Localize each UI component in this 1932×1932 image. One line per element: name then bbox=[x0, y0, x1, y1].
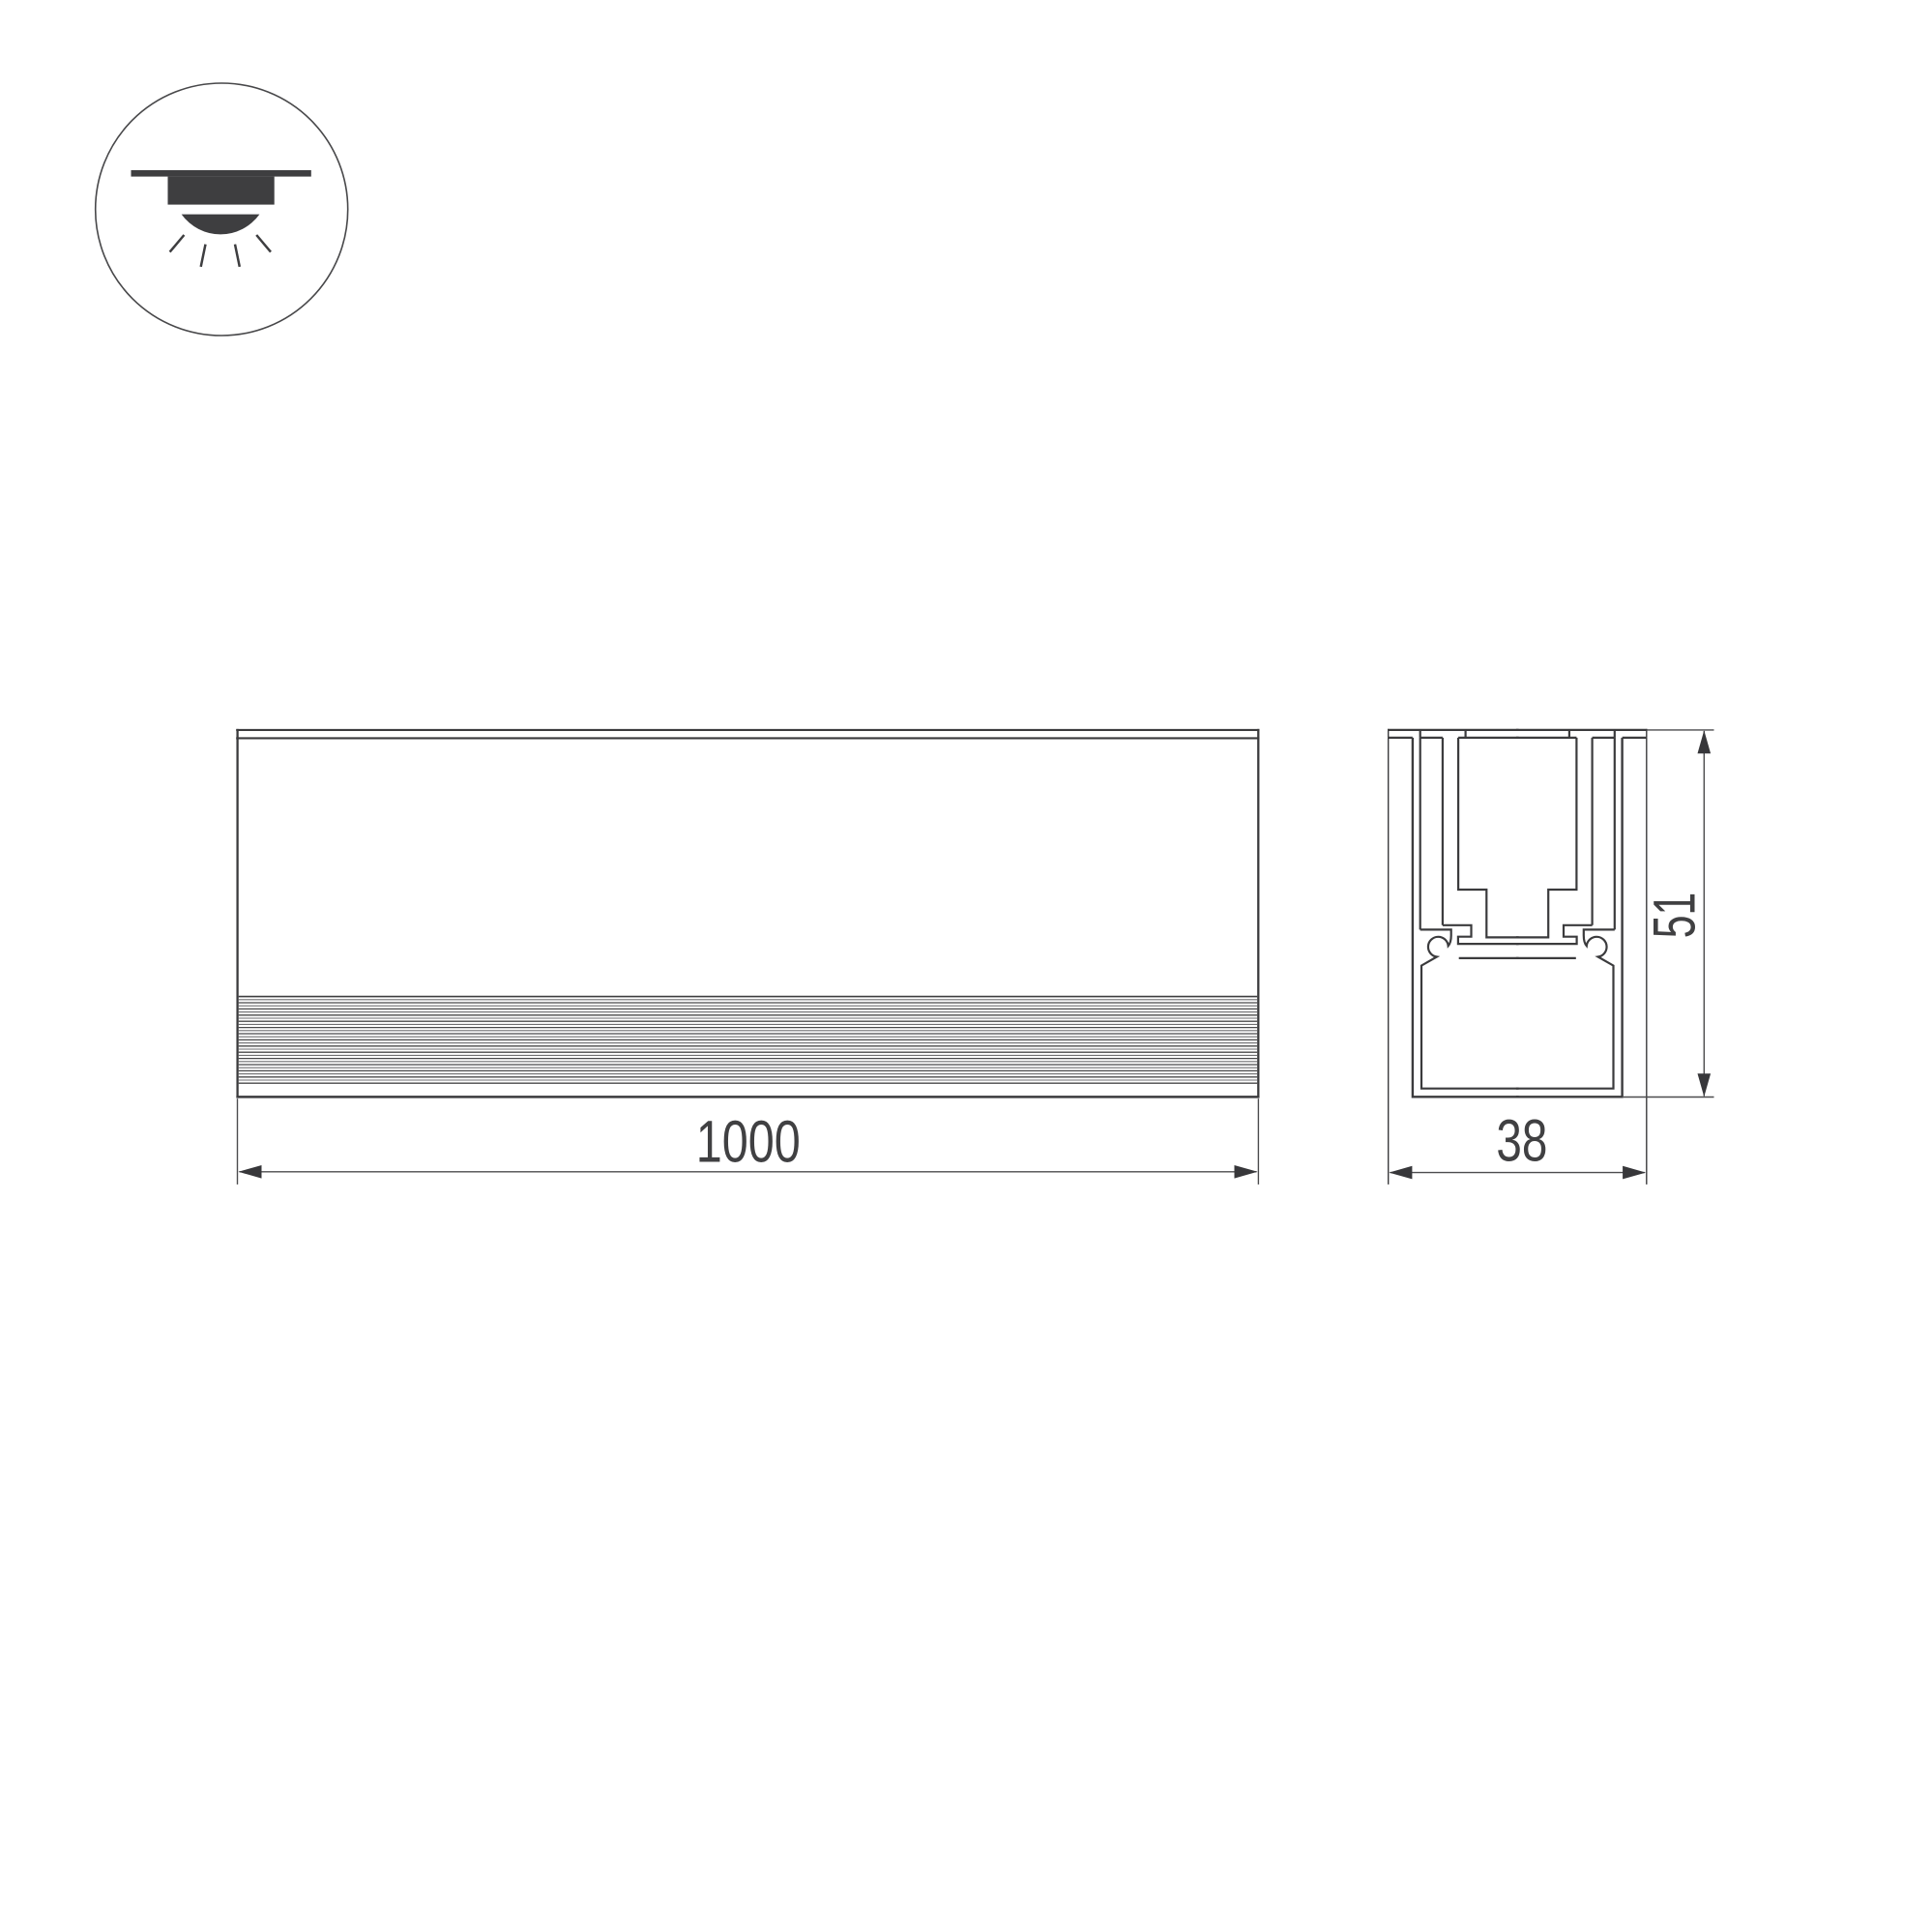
svg-text:38: 38 bbox=[1496, 1107, 1547, 1174]
svg-text:1000: 1000 bbox=[696, 1109, 801, 1176]
svg-text:51: 51 bbox=[1642, 893, 1709, 939]
